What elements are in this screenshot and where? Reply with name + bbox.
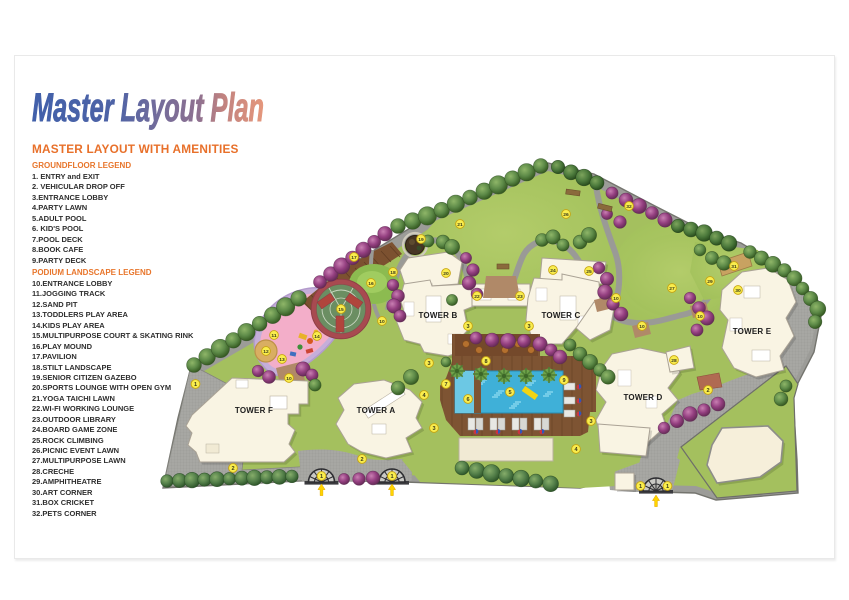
svg-text:17: 17 <box>351 255 357 261</box>
svg-text:3: 3 <box>432 426 435 432</box>
svg-text:1: 1 <box>639 484 642 490</box>
svg-text:11: 11 <box>271 333 276 339</box>
svg-text:TOWER F: TOWER F <box>235 406 273 415</box>
svg-text:10: 10 <box>697 314 703 320</box>
svg-text:5: 5 <box>508 390 511 396</box>
svg-text:28: 28 <box>671 358 677 364</box>
svg-text:26: 26 <box>563 212 569 218</box>
svg-text:3: 3 <box>589 419 592 425</box>
svg-text:2: 2 <box>360 457 363 463</box>
svg-text:TOWER A: TOWER A <box>357 406 396 415</box>
svg-text:19: 19 <box>418 237 424 243</box>
svg-text:TOWER B: TOWER B <box>418 311 457 320</box>
svg-text:TOWER D: TOWER D <box>623 393 662 402</box>
svg-text:27: 27 <box>669 286 675 292</box>
svg-text:16: 16 <box>368 281 374 287</box>
svg-text:15: 15 <box>338 307 344 313</box>
svg-text:Master Layout Plan: Master Layout Plan <box>32 86 264 130</box>
svg-text:2: 2 <box>706 388 709 394</box>
svg-text:1: 1 <box>194 382 197 388</box>
svg-text:31: 31 <box>731 264 737 270</box>
svg-text:10: 10 <box>286 376 292 382</box>
svg-text:22: 22 <box>474 294 480 300</box>
svg-text:18: 18 <box>390 270 396 276</box>
svg-text:6: 6 <box>466 397 469 403</box>
svg-text:10: 10 <box>639 324 645 330</box>
svg-text:3: 3 <box>427 361 430 367</box>
svg-text:14: 14 <box>314 334 320 340</box>
svg-text:25: 25 <box>586 269 592 275</box>
svg-text:1: 1 <box>320 474 323 480</box>
svg-text:TOWER C: TOWER C <box>541 311 580 320</box>
svg-text:7: 7 <box>444 382 447 388</box>
svg-text:9: 9 <box>562 378 565 384</box>
svg-text:1: 1 <box>390 474 393 480</box>
svg-text:12: 12 <box>263 349 269 355</box>
svg-text:8: 8 <box>484 359 487 365</box>
svg-text:10: 10 <box>613 296 619 302</box>
svg-text:32: 32 <box>626 204 632 210</box>
svg-text:30: 30 <box>735 288 741 294</box>
svg-text:23: 23 <box>517 294 523 300</box>
svg-text:10: 10 <box>379 319 385 325</box>
svg-text:2: 2 <box>231 466 234 472</box>
svg-text:29: 29 <box>707 279 713 285</box>
svg-text:1: 1 <box>666 484 669 490</box>
svg-text:24: 24 <box>550 268 556 274</box>
svg-text:13: 13 <box>279 357 285 363</box>
svg-text:3: 3 <box>466 324 469 330</box>
svg-text:3: 3 <box>527 324 530 330</box>
svg-text:TOWER E: TOWER E <box>733 327 772 336</box>
svg-text:21: 21 <box>457 222 463 228</box>
svg-text:20: 20 <box>443 271 449 277</box>
